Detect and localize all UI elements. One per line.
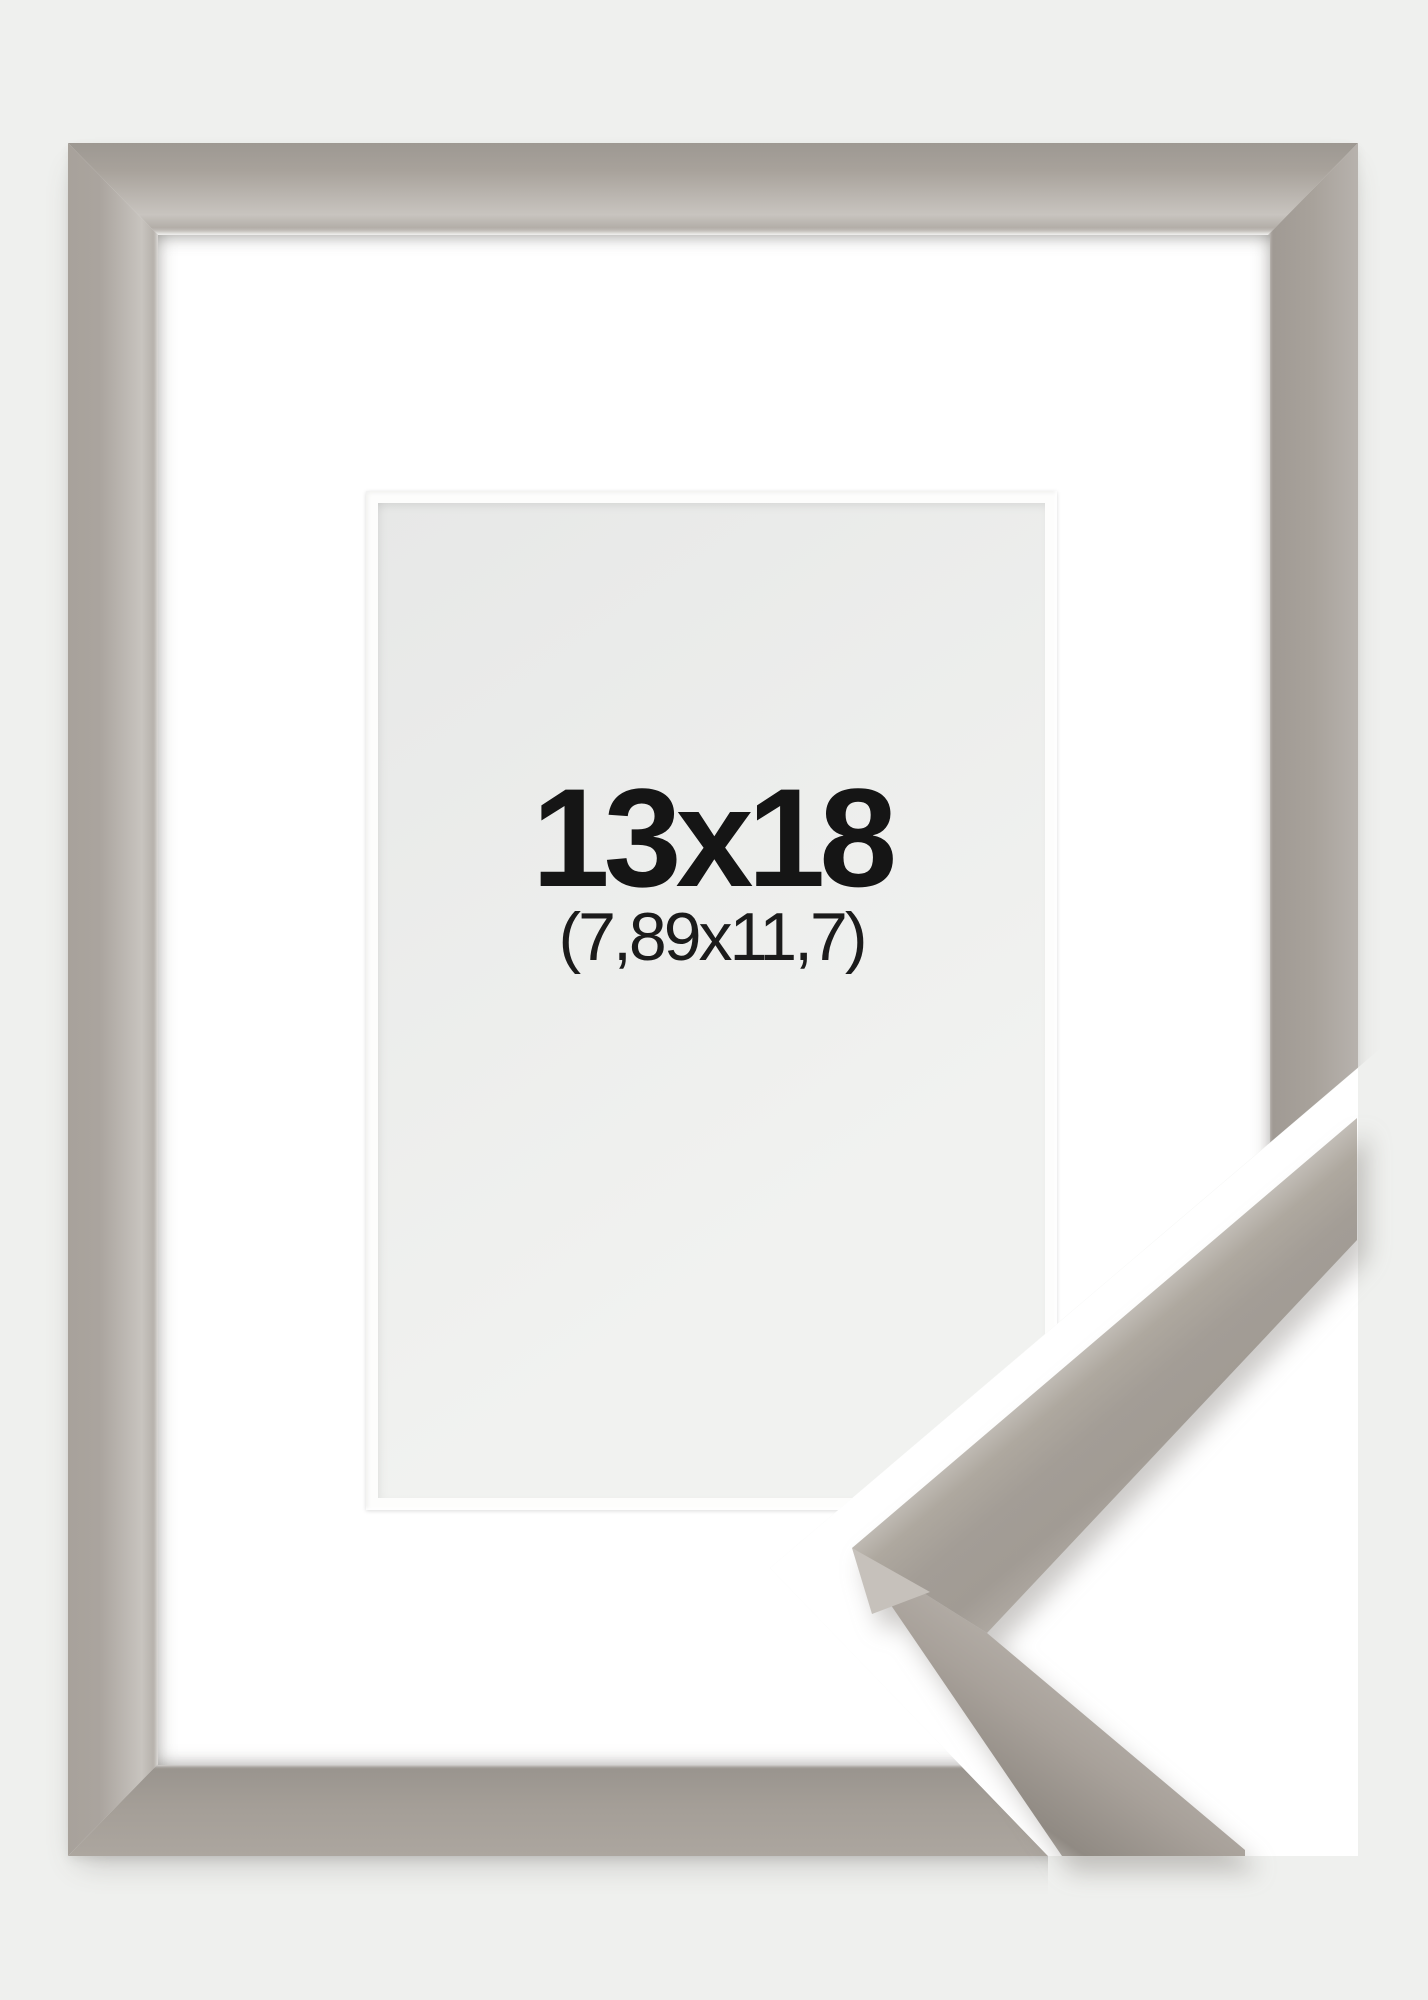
corner-sample-arm-upper	[852, 1118, 1357, 1633]
corner-sample	[0, 0, 1428, 2000]
product-photo: 13x18 (7,89x11,7)	[0, 0, 1428, 2000]
